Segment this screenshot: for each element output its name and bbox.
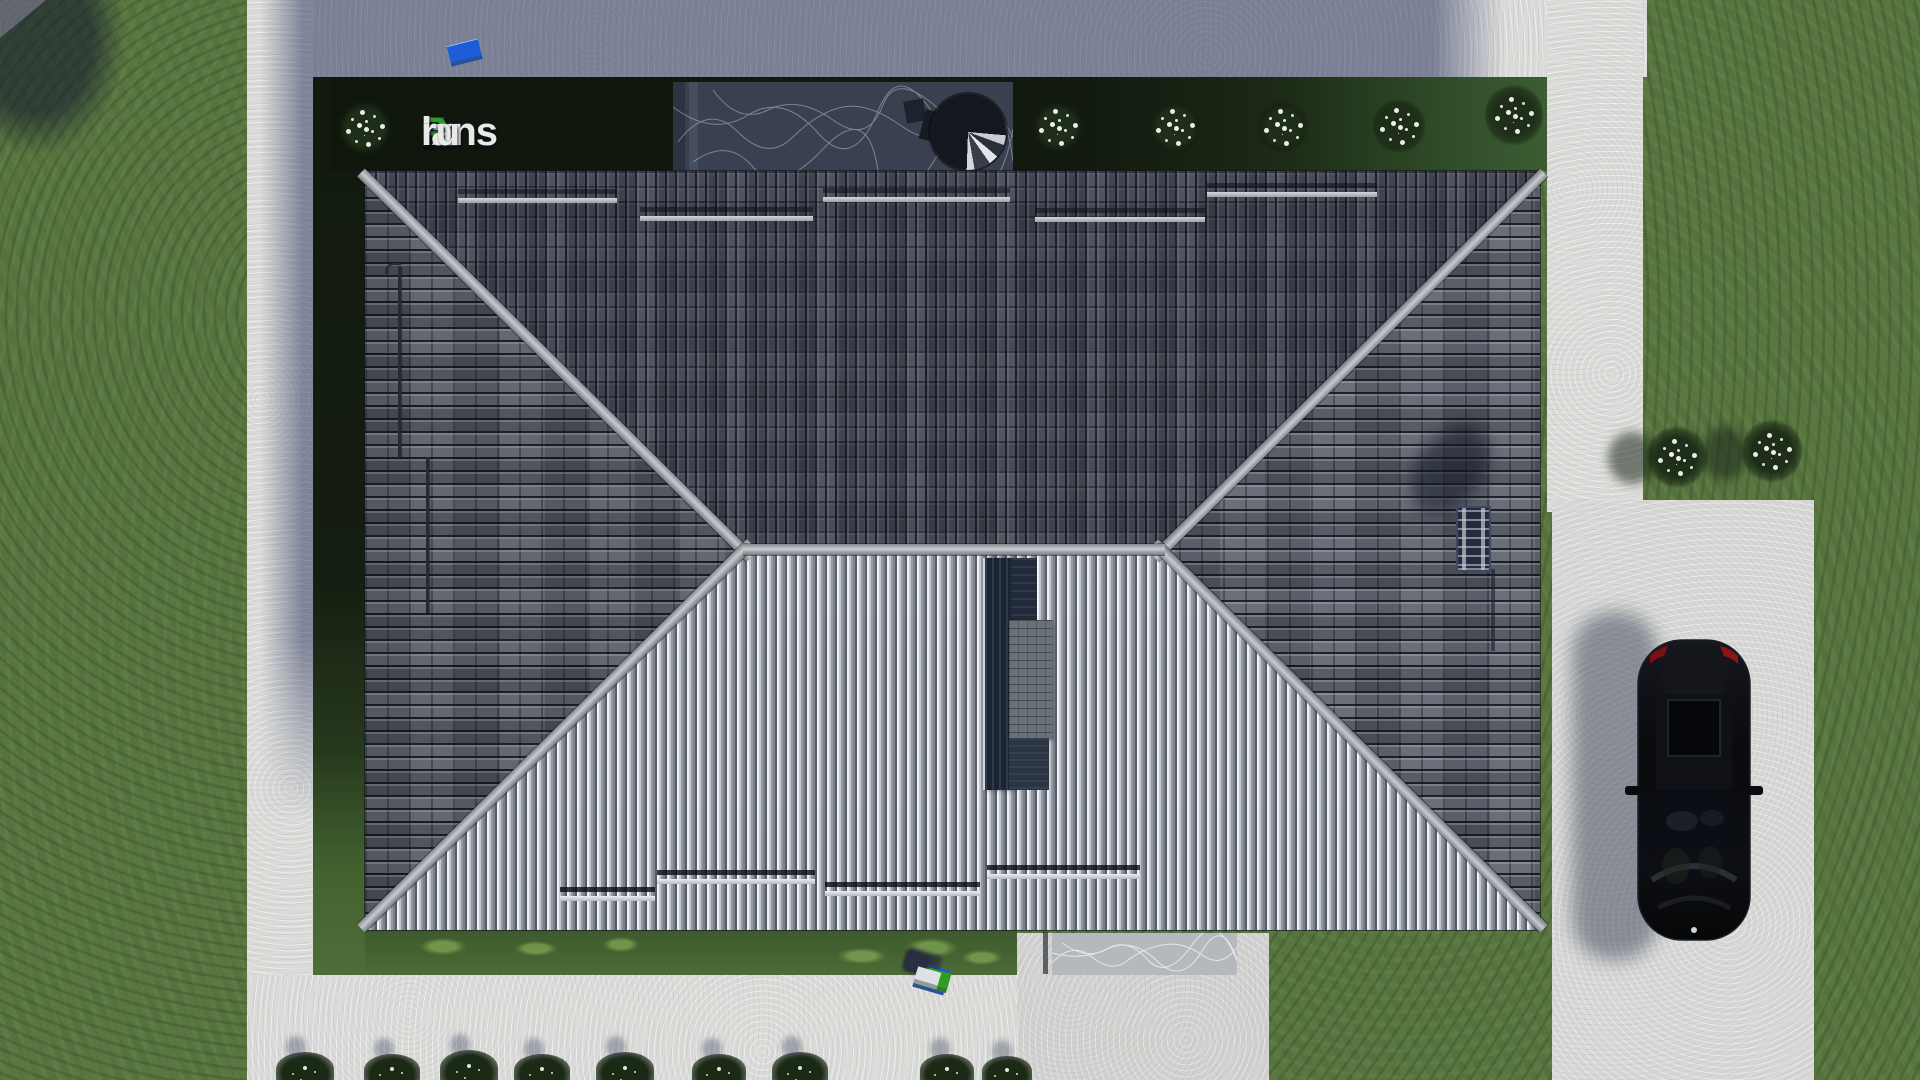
patio-slab <box>1052 933 1237 975</box>
snow-guard <box>825 891 980 896</box>
hedge-bush <box>364 1054 420 1080</box>
snow-guard <box>823 197 1010 202</box>
marble-veins <box>1052 933 1237 975</box>
flowering-bush <box>336 99 394 157</box>
downspout <box>1043 932 1048 974</box>
hedge-bush <box>920 1054 974 1080</box>
chimney-flue <box>1011 558 1037 620</box>
grass-tuft <box>962 950 1002 965</box>
roof-pipe <box>1491 569 1495 651</box>
car <box>1624 636 1764 946</box>
hedge-bush <box>440 1050 498 1080</box>
hedge-bush <box>692 1054 746 1080</box>
grass-tuft <box>515 941 557 956</box>
lightning-rod <box>398 266 401 458</box>
aerial-render-stage: FixPlans.ru <box>0 0 1920 1080</box>
flowering-tree <box>1742 418 1802 484</box>
side-lawn-strip <box>313 77 365 975</box>
flowering-bush <box>1257 101 1309 153</box>
flowering-bush <box>1372 99 1426 153</box>
hedge-bush <box>514 1054 570 1080</box>
patio-umbrella <box>930 94 1006 170</box>
snow-guard <box>987 874 1140 879</box>
grass-tuft <box>603 937 639 952</box>
chimney <box>983 558 1053 793</box>
roof-hatch-ladder <box>1456 506 1491 572</box>
snow-guard <box>560 896 655 901</box>
snow-guard <box>657 879 815 884</box>
chimney-brick <box>1009 620 1053 738</box>
snow-guard <box>1207 192 1377 197</box>
chimney-base <box>1009 738 1049 790</box>
flowering-tree <box>1646 426 1708 488</box>
grass-tuft <box>420 938 466 955</box>
tree-shadow <box>1703 426 1747 480</box>
lightning-rod <box>426 457 429 613</box>
hedge-bush <box>772 1052 828 1080</box>
grass-tuft <box>838 948 886 964</box>
house-shadow-on-walkway <box>260 0 313 820</box>
flowering-bush <box>1148 100 1202 154</box>
house-hip-roof <box>365 171 1540 930</box>
house-shadow-on-walkway <box>313 0 1505 77</box>
hedge-bush <box>276 1052 334 1080</box>
watermark-letter: ru <box>421 112 459 152</box>
hedge-bush <box>596 1052 654 1080</box>
snow-guard <box>640 216 813 221</box>
roof-main-ridge <box>743 544 1165 555</box>
hedge-bush <box>982 1056 1032 1080</box>
grass-tuft <box>905 938 957 958</box>
flowering-bush <box>1031 100 1085 154</box>
snow-guard <box>1035 217 1205 222</box>
tree-shadow <box>0 0 124 154</box>
flowering-bush <box>1485 83 1543 147</box>
snow-guard <box>458 198 617 203</box>
